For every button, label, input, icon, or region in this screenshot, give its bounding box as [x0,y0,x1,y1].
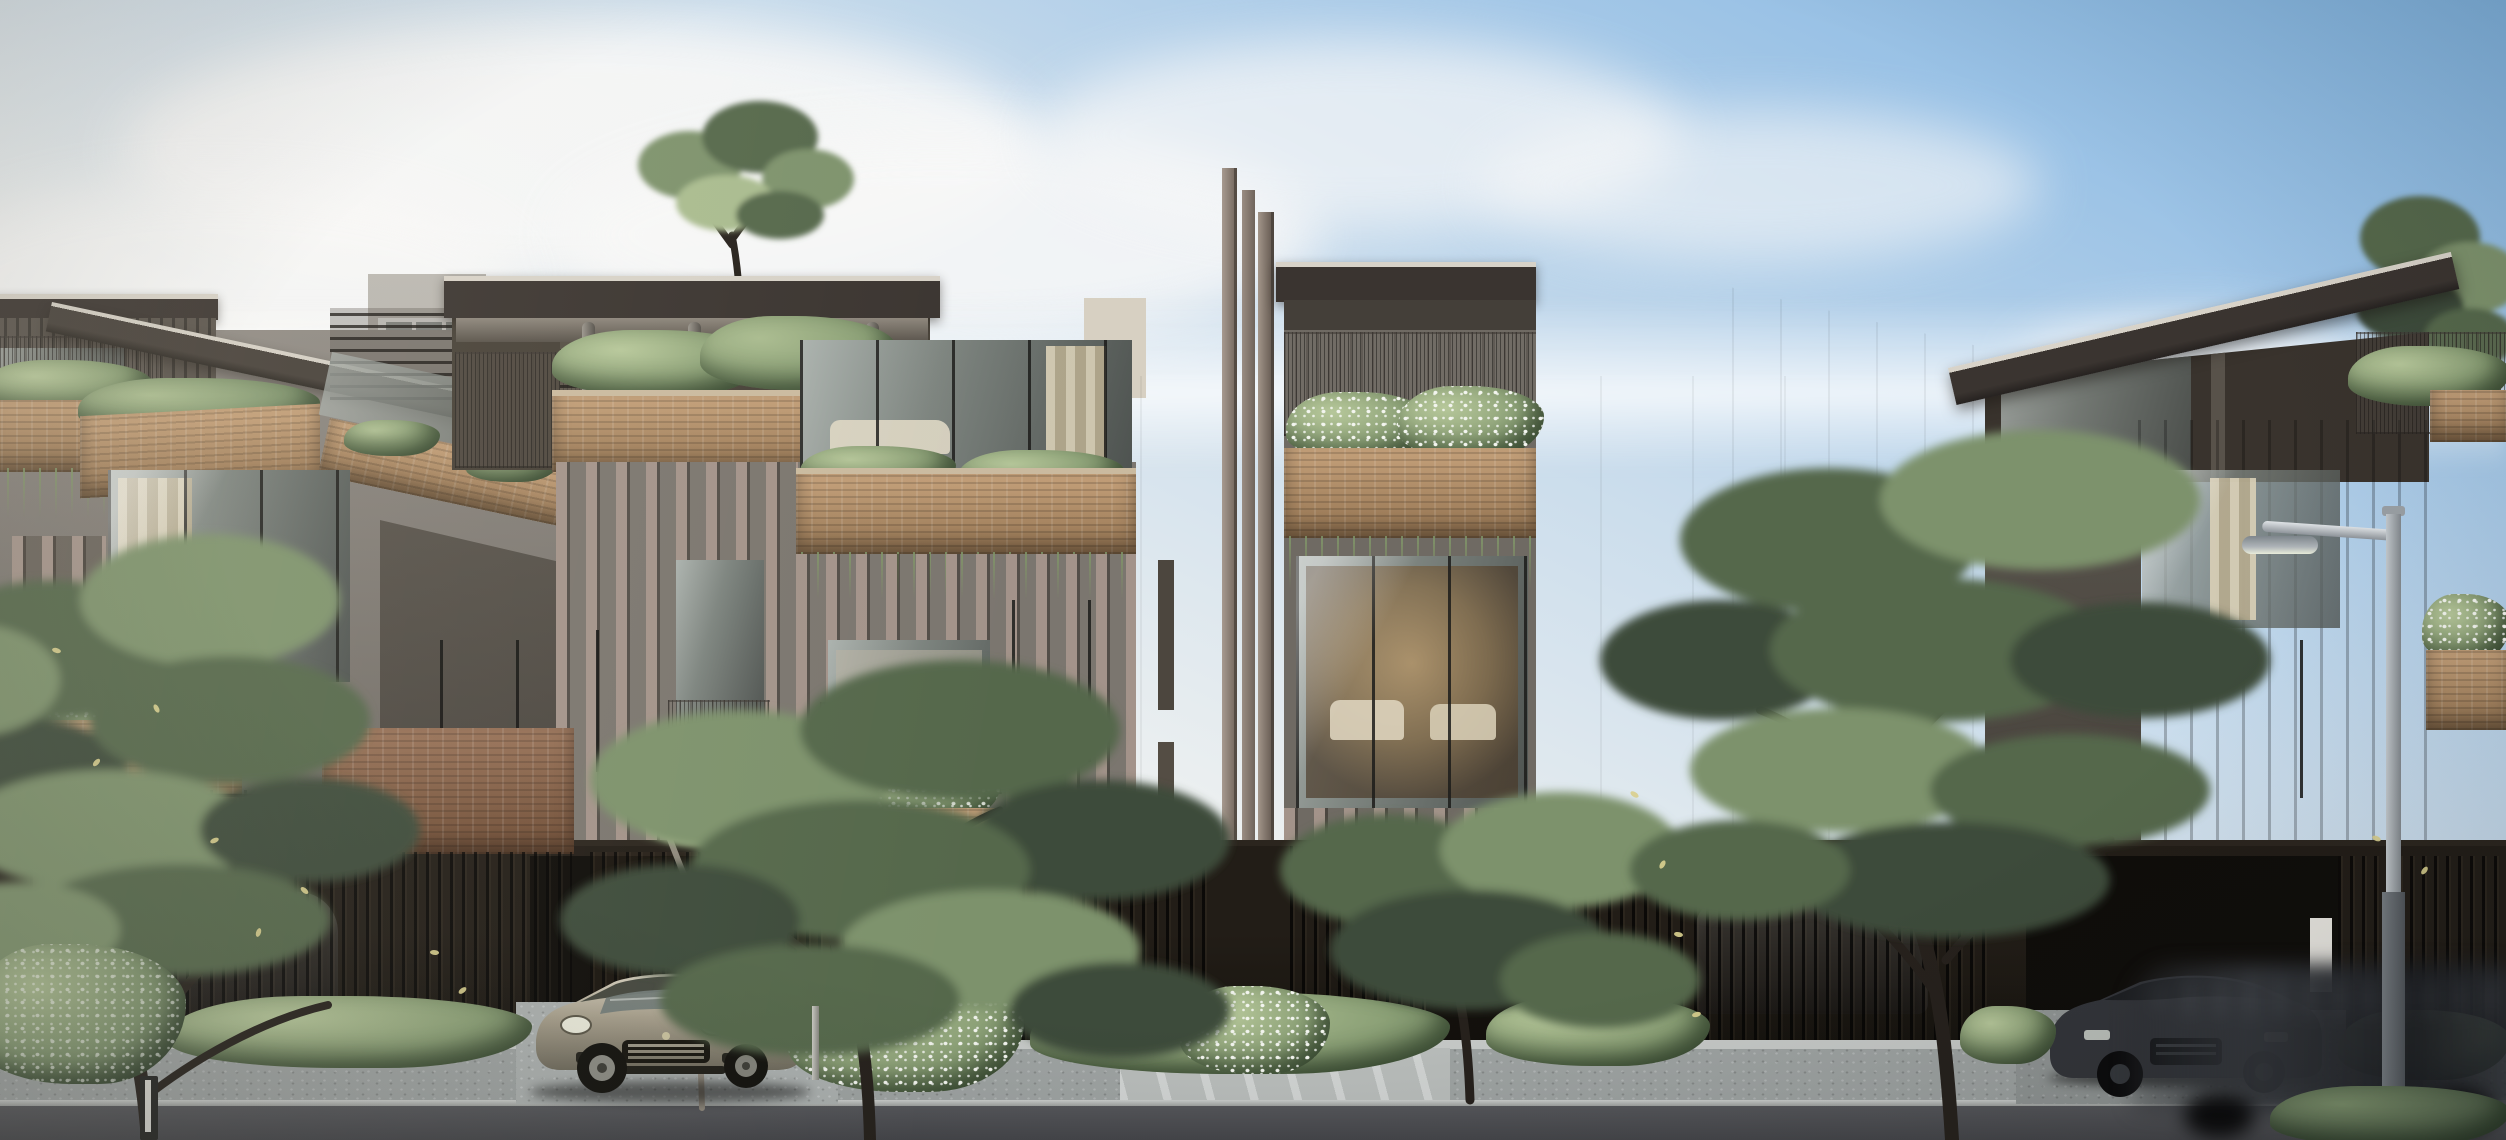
brick-planter [2430,390,2506,442]
architectural-render: SD06 [0,0,2506,1140]
brick-planter-band [796,474,1136,554]
center-roof-slab [444,276,940,318]
window-slot [2300,640,2372,798]
bollard-light [140,1076,158,1140]
cloud [1480,110,2040,260]
bollard-lens [145,1080,151,1132]
blurred-highlights [2158,980,2506,1016]
right-center-roof [1276,262,1536,302]
brick-planter [2426,650,2506,730]
brick-planter [1284,448,1536,538]
lamp-head [2242,536,2318,554]
path-light-post [812,1006,819,1080]
blurred-wheel [2184,1094,2254,1138]
ivy-tuft [344,420,440,456]
front-shrub [2270,1086,2506,1140]
street-tree-center [560,620,1240,1140]
